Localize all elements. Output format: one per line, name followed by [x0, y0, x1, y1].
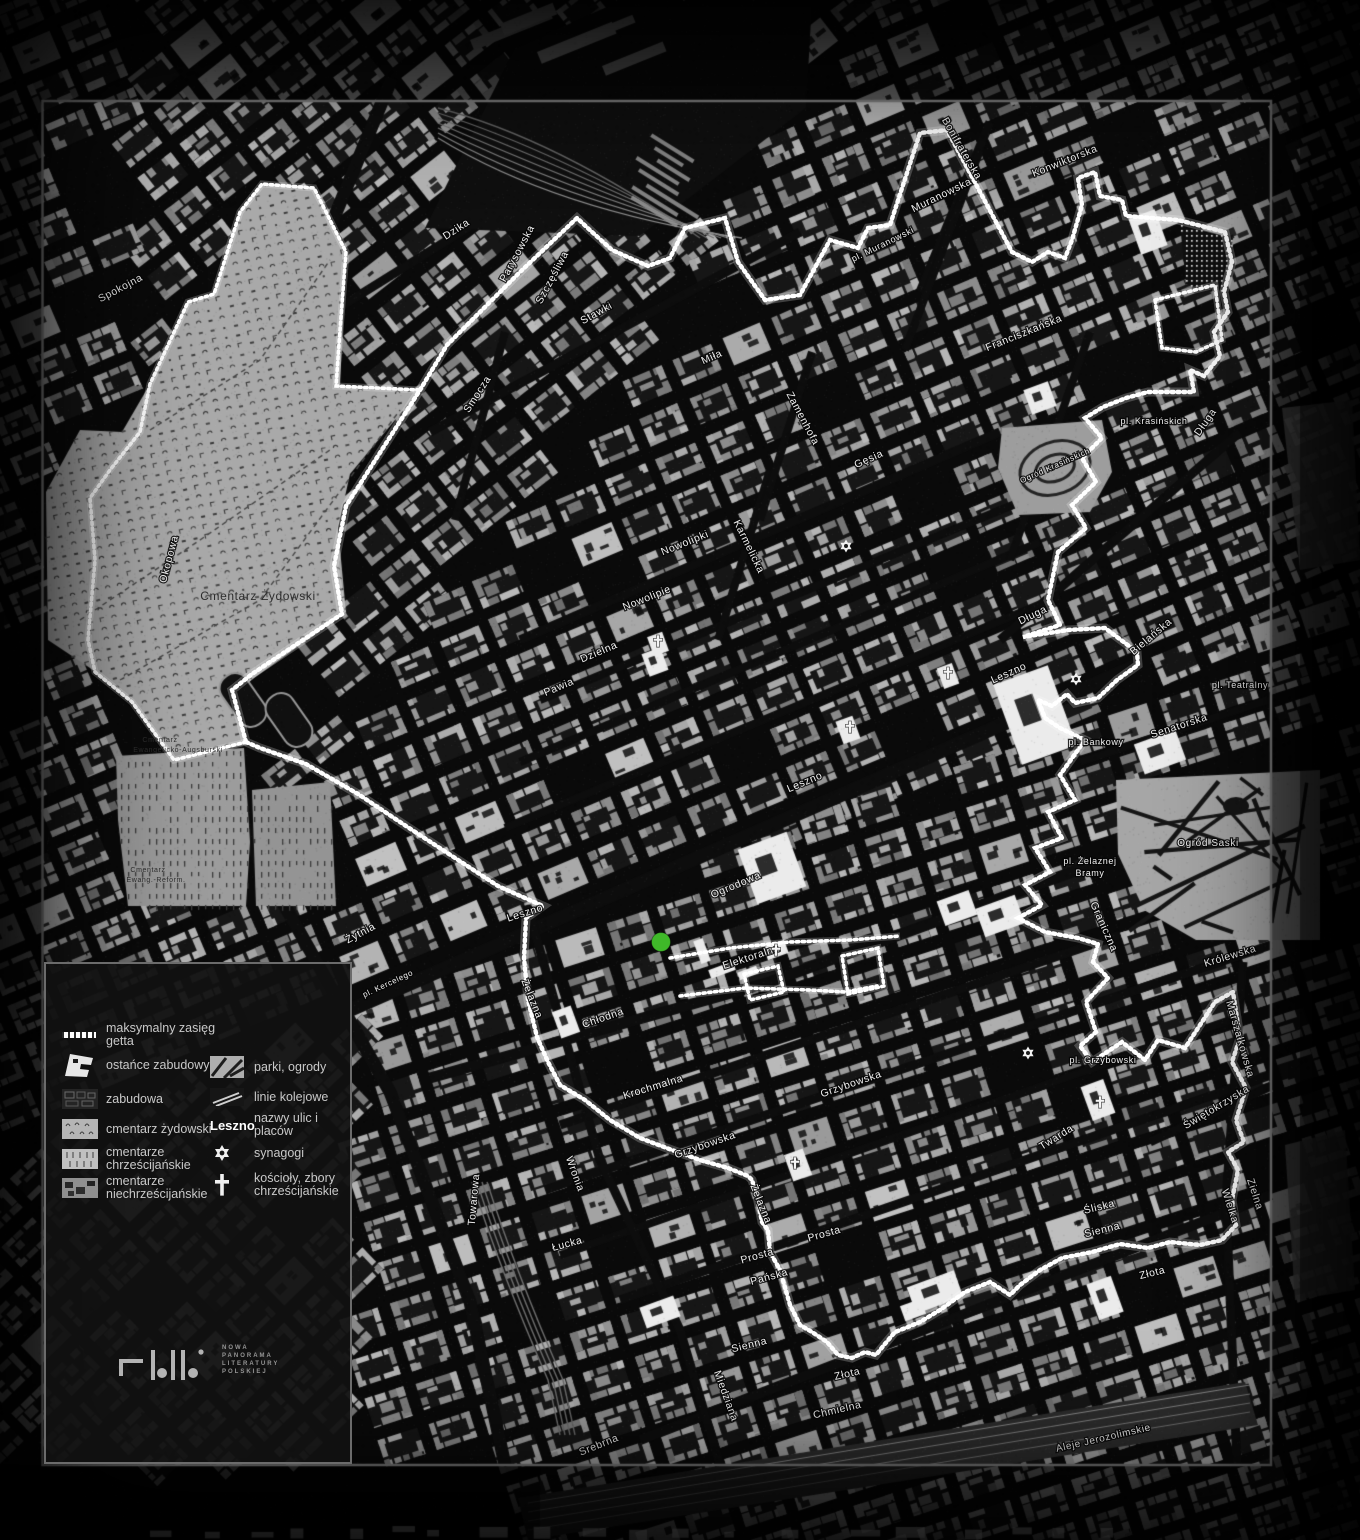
ghetto-line-icon	[62, 1032, 100, 1038]
legend-item-churches: kościoły, zbory chrześcijańskie	[210, 1168, 350, 1202]
legend-label: synagogi	[248, 1147, 304, 1160]
legend-item-railways: linie kolejowe	[210, 1084, 328, 1110]
legend-label: nazwy ulic i placów	[248, 1112, 350, 1138]
legend-label: kościoły, zbory chrześcijańskie	[248, 1172, 350, 1198]
legend-item-parks: parki, ogrody	[210, 1054, 326, 1080]
buildings-icon	[62, 1089, 100, 1109]
legend-label: cmentarz żydowski	[100, 1123, 212, 1136]
legend-label: cmentarze niechrześcijańskie	[100, 1175, 216, 1201]
ruins-icon	[62, 1050, 100, 1080]
legend-label: linie kolejowe	[248, 1091, 328, 1104]
legend-item-jewish-cemetery: cmentarz żydowski	[62, 1116, 212, 1142]
legend-panel: maksymalny zasięg getta ostańce zabudowy…	[44, 962, 352, 1464]
map-viewport[interactable]: SpokojnaDzikaOkopowaParysowskaSzczęśliwa…	[0, 0, 1360, 1540]
non-christian-cemeteries-icon	[62, 1178, 100, 1198]
legend-label: cmentarze chrześcijańskie	[100, 1146, 216, 1172]
legend-item-street-names: Leszno nazwy ulic i placów	[210, 1112, 350, 1138]
location-marker[interactable]	[652, 933, 671, 952]
synagogue-star-icon	[210, 1141, 248, 1165]
railways-icon	[210, 1088, 248, 1106]
legend-item-christian-cemeteries: cmentarze chrześcijańskie	[62, 1146, 216, 1172]
legend-label: maksymalny zasięg getta	[100, 1022, 216, 1048]
legend-item-ruins: ostańce zabudowy	[62, 1048, 210, 1082]
legend-item-synagogues: synagogi	[210, 1140, 304, 1166]
street-name-sample: Leszno	[210, 1118, 248, 1133]
legend-label: zabudowa	[100, 1093, 163, 1106]
legend-item-buildings: zabudowa	[62, 1086, 163, 1112]
christian-cemeteries-icon	[62, 1149, 100, 1169]
church-cross-icon	[210, 1172, 248, 1198]
legend-label: ostańce zabudowy	[100, 1059, 210, 1072]
legend-item-ghetto-line: maksymalny zasięg getta	[62, 1022, 216, 1048]
nplp-logo: NOWA PANORAMA LITERATURY POLSKIEJ	[116, 1340, 279, 1384]
legend-item-non-christian-cemeteries: cmentarze niechrześcijańskie	[62, 1175, 216, 1201]
legend-label: parki, ogrody	[248, 1061, 326, 1074]
nplp-logo-glyphs	[116, 1340, 208, 1384]
parks-icon	[210, 1056, 248, 1078]
nplp-logo-text: NOWA PANORAMA LITERATURY POLSKIEJ	[222, 1344, 279, 1376]
jewish-cemetery-icon	[62, 1119, 100, 1139]
